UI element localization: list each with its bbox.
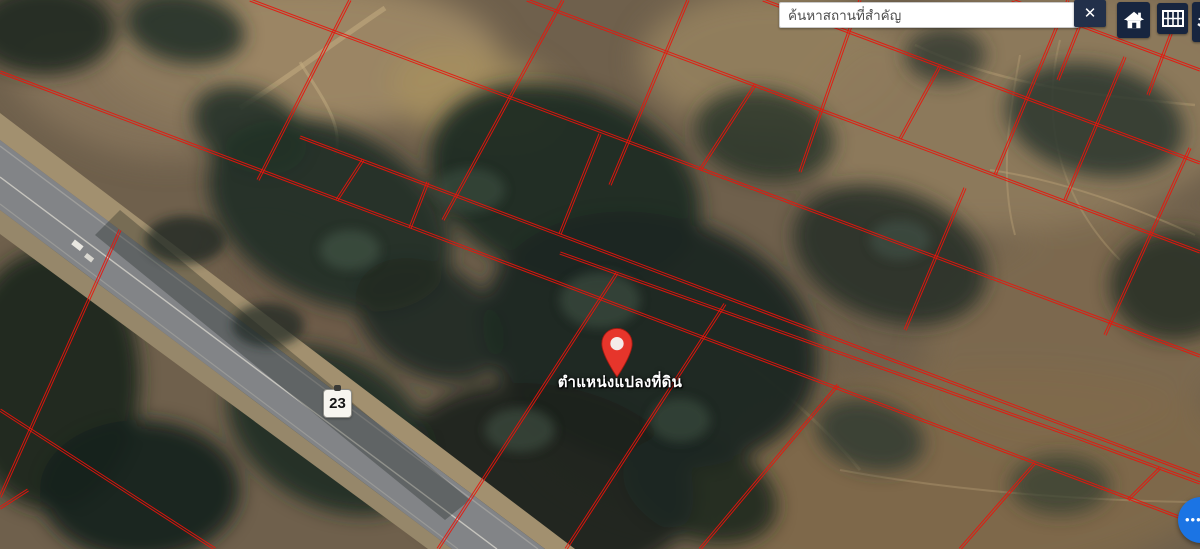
- route-shield-dot: [334, 385, 341, 391]
- parcel-location-label: ตำแหน่งแปลงที่ดิน: [530, 370, 710, 394]
- close-icon: ✕: [1084, 6, 1097, 21]
- search-clear-button[interactable]: ✕: [1074, 0, 1106, 27]
- search-input[interactable]: [779, 2, 1079, 28]
- layers-icon: [1195, 5, 1200, 39]
- basemap-grid-button[interactable]: [1157, 3, 1188, 34]
- home-button[interactable]: [1117, 2, 1150, 38]
- grid-icon: [1162, 10, 1184, 27]
- ellipsis-icon: •••: [1185, 512, 1200, 527]
- satellite-map[interactable]: [0, 0, 1200, 549]
- route-shield-23: 23: [323, 389, 352, 418]
- map-application-window: 23 ตำแหน่งแปลงที่ดิน ✕ ••: [0, 0, 1200, 549]
- layers-button[interactable]: [1192, 2, 1200, 42]
- home-icon: [1123, 9, 1145, 31]
